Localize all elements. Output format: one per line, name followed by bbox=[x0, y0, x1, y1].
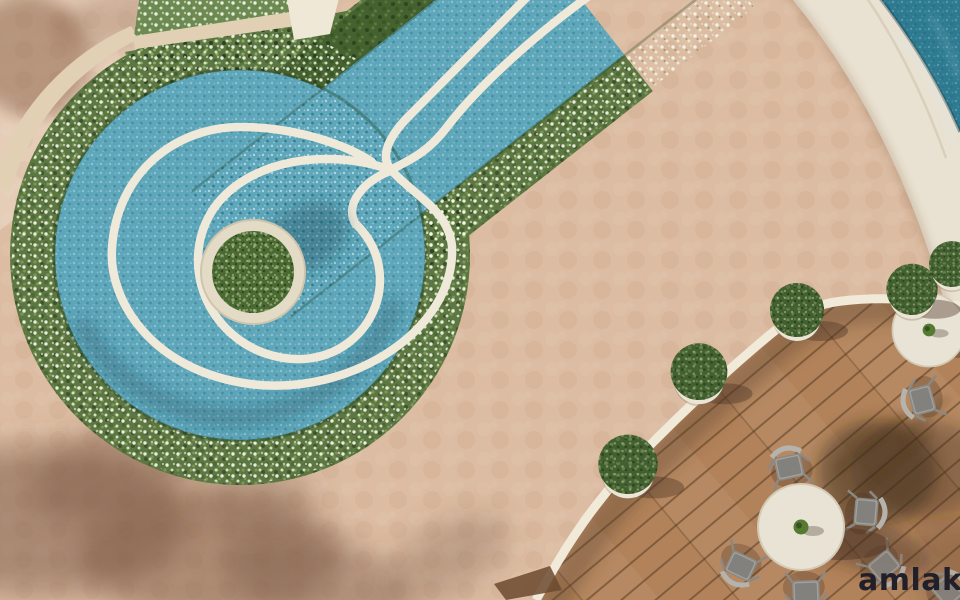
scene-svg: amlaku bbox=[0, 0, 960, 600]
rendering-canvas: amlaku bbox=[0, 0, 960, 600]
watermark-text: amlaku bbox=[858, 563, 960, 598]
